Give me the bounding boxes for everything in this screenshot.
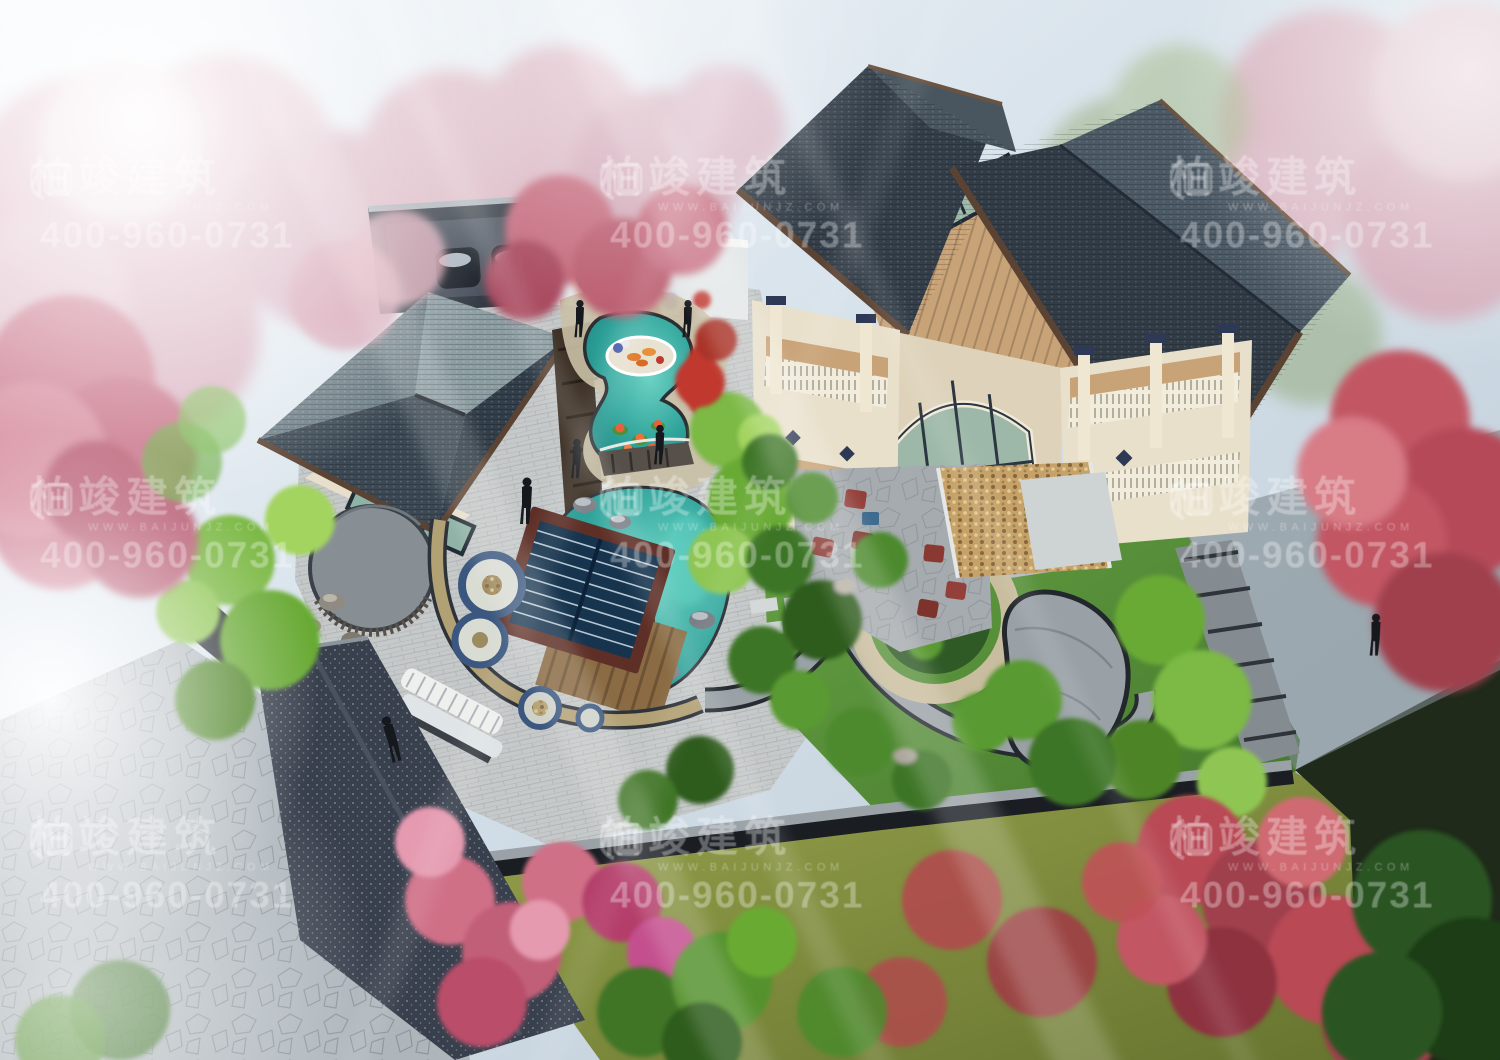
render-scene [0,0,1500,1060]
patio-table [862,512,879,525]
architectural-render: 柏竣建筑 WWW.BAIJUNJZ.COM 400-960-0731 柏竣建筑 … [0,0,1500,1060]
concrete-pad [1020,472,1122,570]
